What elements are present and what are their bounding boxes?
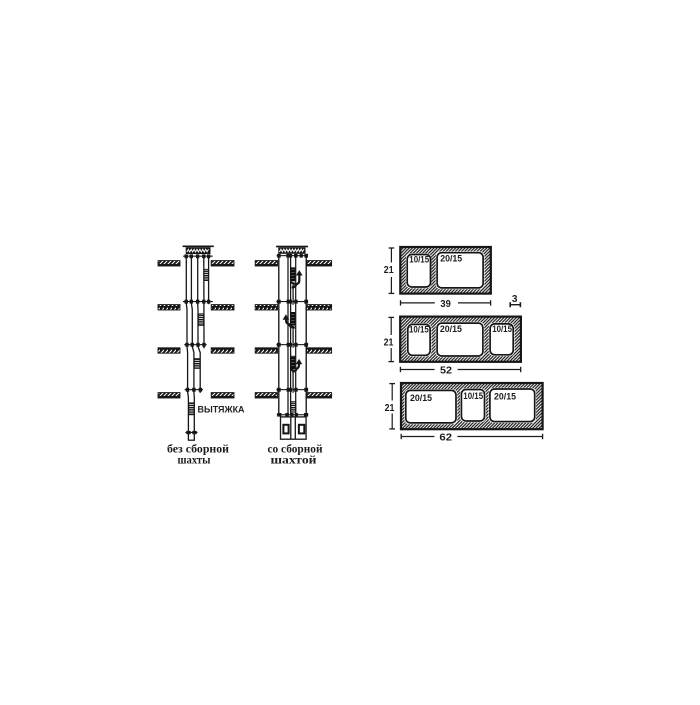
svg-text:21: 21 bbox=[384, 265, 394, 276]
svg-text:20/15: 20/15 bbox=[440, 324, 462, 334]
svg-text:20/15: 20/15 bbox=[410, 393, 432, 403]
svg-text:10/15: 10/15 bbox=[409, 255, 429, 265]
svg-text:10/15: 10/15 bbox=[463, 391, 483, 401]
svg-text:39: 39 bbox=[440, 299, 451, 310]
svg-text:шахтой: шахтой bbox=[271, 453, 317, 467]
svg-text:20/15: 20/15 bbox=[440, 254, 462, 264]
svg-text:20/15: 20/15 bbox=[494, 392, 516, 402]
svg-text:3: 3 bbox=[512, 294, 518, 305]
svg-text:шахты: шахты bbox=[178, 453, 212, 467]
svg-text:52: 52 bbox=[440, 365, 452, 376]
svg-text:10/15: 10/15 bbox=[409, 324, 429, 334]
svg-text:21: 21 bbox=[384, 338, 394, 349]
svg-text:10/15: 10/15 bbox=[492, 324, 512, 334]
svg-text:21: 21 bbox=[385, 403, 395, 414]
svg-text:ВЫТЯЖКА: ВЫТЯЖКА bbox=[198, 404, 245, 415]
svg-text:62: 62 bbox=[439, 432, 452, 443]
